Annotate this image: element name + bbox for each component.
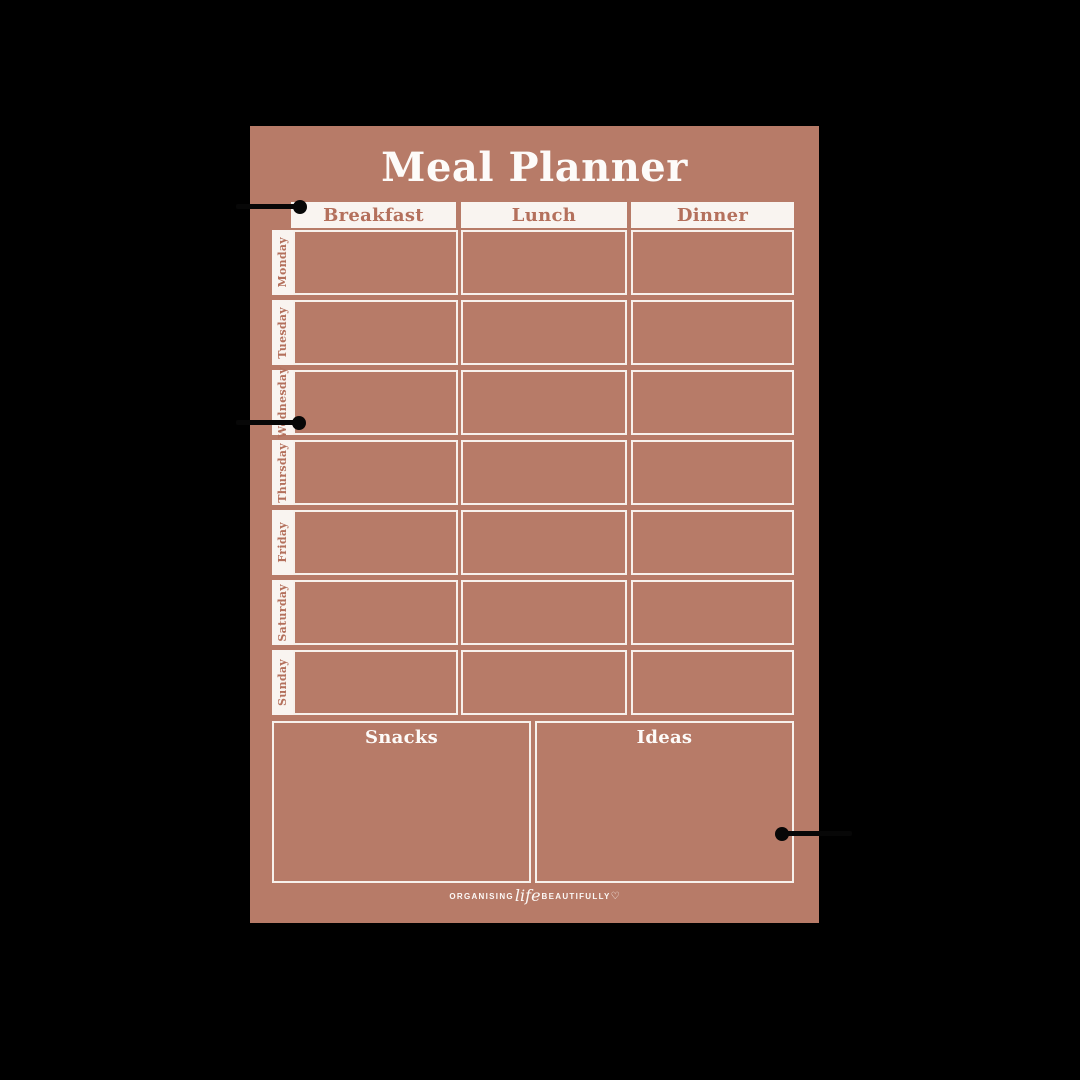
day-label: Thursday <box>276 443 289 503</box>
meal-cell-thursday-lunch[interactable] <box>461 440 627 505</box>
meal-cell-friday-breakfast[interactable] <box>293 510 458 575</box>
brand-logo: ORGANISINGlifeBEAUTIFULLY♡ <box>250 886 819 905</box>
meal-cell-wednesday-dinner[interactable] <box>631 370 794 435</box>
day-tab-wednesday: Wednesday <box>272 370 293 435</box>
meal-cell-saturday-dinner[interactable] <box>631 580 794 645</box>
brand-text-beautifully: BEAUTIFULLY <box>542 892 611 901</box>
day-row-monday: Monday <box>272 230 796 295</box>
meal-cell-monday-dinner[interactable] <box>631 230 794 295</box>
day-tab-sunday: Sunday <box>272 650 293 715</box>
meal-cell-sunday-breakfast[interactable] <box>293 650 458 715</box>
day-row-saturday: Saturday <box>272 580 796 645</box>
day-tab-friday: Friday <box>272 510 293 575</box>
day-label: Sunday <box>276 659 289 706</box>
day-tab-thursday: Thursday <box>272 440 293 505</box>
day-row-friday: Friday <box>272 510 796 575</box>
meal-cell-monday-breakfast[interactable] <box>293 230 458 295</box>
meal-cell-saturday-lunch[interactable] <box>461 580 627 645</box>
callout-dot-top-left <box>293 200 307 214</box>
ideas-box[interactable]: Ideas <box>535 721 794 883</box>
column-header-lunch: Lunch <box>461 202 627 228</box>
day-label: Saturday <box>276 584 289 642</box>
heart-icon: ♡ <box>611 891 620 902</box>
meal-cell-friday-dinner[interactable] <box>631 510 794 575</box>
meal-cell-sunday-dinner[interactable] <box>631 650 794 715</box>
callout-line-top-left <box>236 204 300 209</box>
meal-cell-thursday-breakfast[interactable] <box>293 440 458 505</box>
brand-text-life: life <box>515 886 541 905</box>
day-label: Tuesday <box>276 307 289 359</box>
day-row-sunday: Sunday <box>272 650 796 715</box>
meal-cell-tuesday-dinner[interactable] <box>631 300 794 365</box>
day-label: Friday <box>276 522 289 563</box>
column-header-dinner: Dinner <box>631 202 794 228</box>
callout-dot-bottom-right <box>775 827 789 841</box>
planner-page: Meal Planner Breakfast Lunch Dinner Mond… <box>250 126 819 923</box>
meal-cell-wednesday-lunch[interactable] <box>461 370 627 435</box>
day-row-tuesday: Tuesday <box>272 300 796 365</box>
meal-cell-tuesday-lunch[interactable] <box>461 300 627 365</box>
day-label: Wednesday <box>276 367 289 438</box>
day-tab-monday: Monday <box>272 230 293 295</box>
day-label: Monday <box>276 237 289 288</box>
ideas-box-title: Ideas <box>537 727 792 748</box>
meal-cell-friday-lunch[interactable] <box>461 510 627 575</box>
canvas-background: Meal Planner Breakfast Lunch Dinner Mond… <box>0 0 1080 1080</box>
meal-cell-monday-lunch[interactable] <box>461 230 627 295</box>
snacks-box[interactable]: Snacks <box>272 721 531 883</box>
meal-cell-thursday-dinner[interactable] <box>631 440 794 505</box>
meal-cell-sunday-lunch[interactable] <box>461 650 627 715</box>
day-row-thursday: Thursday <box>272 440 796 505</box>
callout-dot-mid-left <box>292 416 306 430</box>
snacks-box-title: Snacks <box>274 727 529 748</box>
column-header-breakfast: Breakfast <box>291 202 456 228</box>
meal-cell-wednesday-breakfast[interactable] <box>293 370 458 435</box>
day-tab-tuesday: Tuesday <box>272 300 293 365</box>
page-title: Meal Planner <box>250 144 819 191</box>
callout-line-mid-left <box>236 420 299 425</box>
meal-cell-saturday-breakfast[interactable] <box>293 580 458 645</box>
meal-cell-tuesday-breakfast[interactable] <box>293 300 458 365</box>
brand-text-organising: ORGANISING <box>449 892 514 901</box>
callout-line-bottom-right <box>782 831 852 836</box>
day-tab-saturday: Saturday <box>272 580 293 645</box>
day-row-wednesday: Wednesday <box>272 370 796 435</box>
